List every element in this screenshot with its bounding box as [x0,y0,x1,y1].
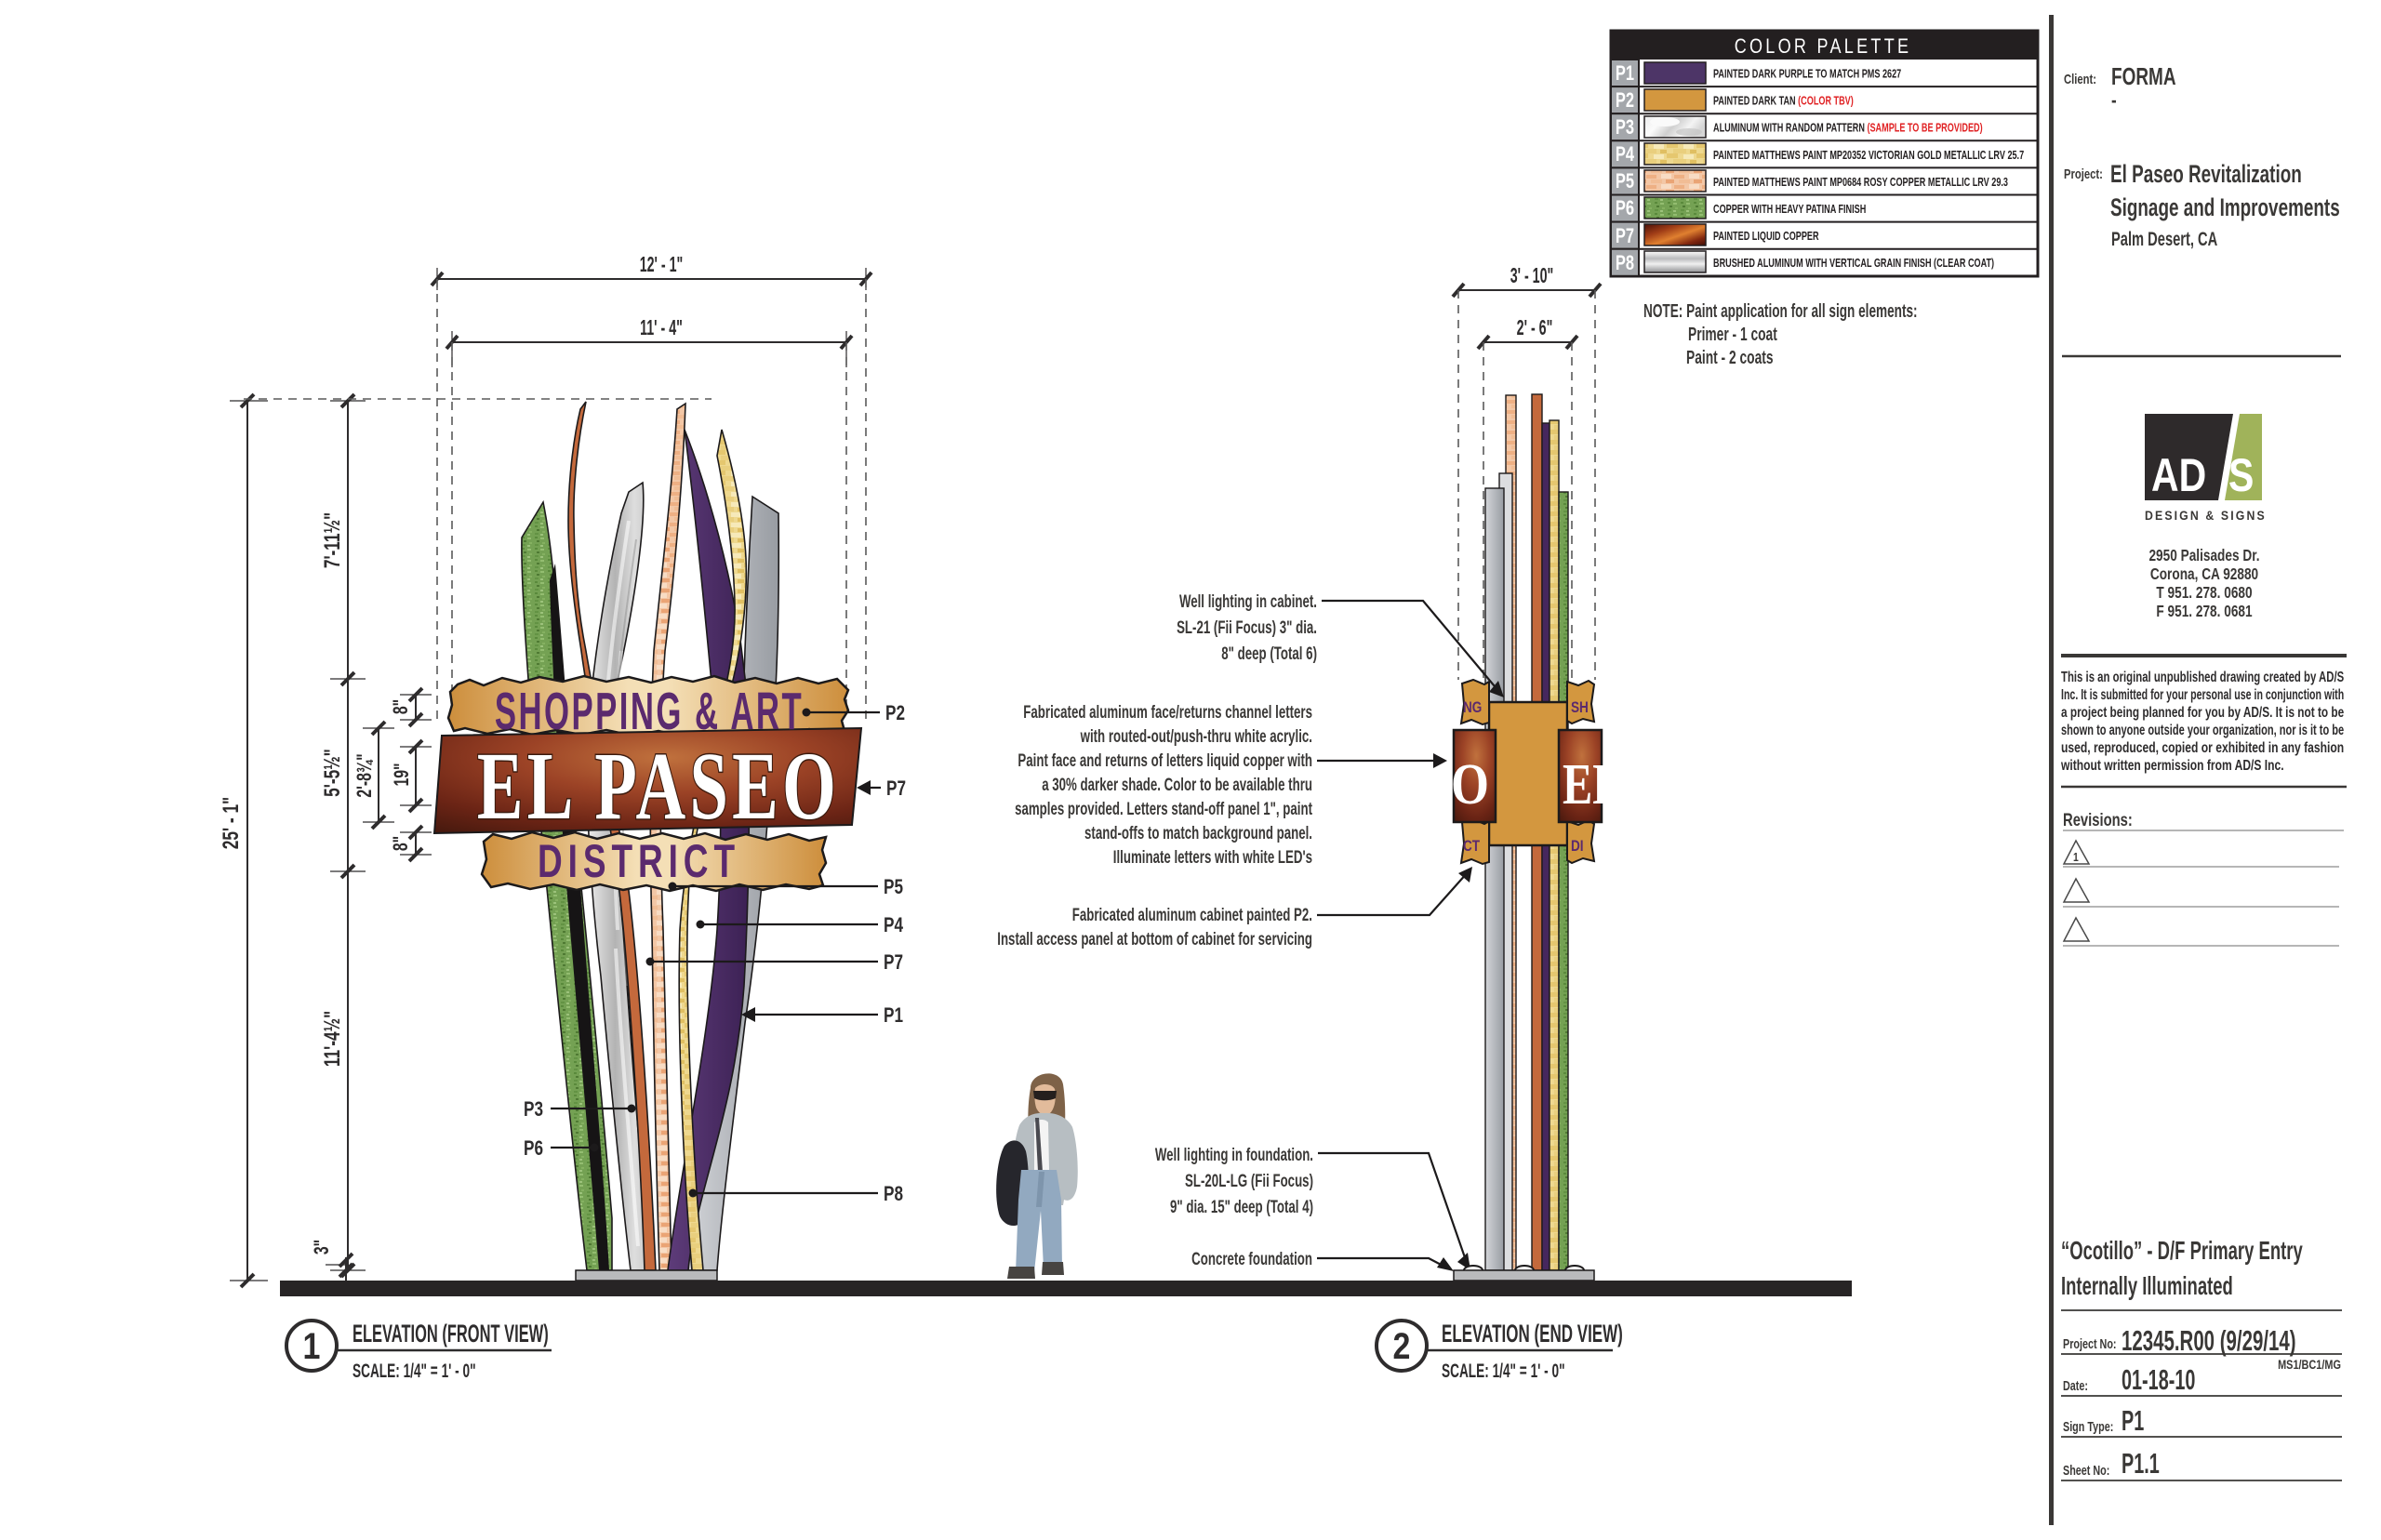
svg-text:Client:: Client: [2064,71,2096,86]
svg-text:PAINTED DARK TAN (COLOR TBV): PAINTED DARK TAN (COLOR TBV) [1713,95,1854,108]
svg-text:Well lighting in foundation.: Well lighting in foundation. [1155,1146,1313,1165]
svg-text:used, reproduced, copied or ex: used, reproduced, copied or exhibited in… [2061,739,2344,756]
svg-text:AD: AD [2151,449,2206,501]
svg-text:Project:: Project: [2064,166,2103,181]
svg-text:PAINTED DARK PURPLE TO MATCH P: PAINTED DARK PURPLE TO MATCH PMS 2627 [1713,68,1901,81]
svg-text:with routed-out/push-thru whit: with routed-out/push-thru white acrylic. [1080,727,1312,747]
svg-text:P3: P3 [1616,116,1634,139]
svg-text:SL-21 (Fii Focus) 3" dia.: SL-21 (Fii Focus) 3" dia. [1177,618,1317,638]
svg-text:P1: P1 [884,1004,903,1028]
svg-text:P3: P3 [524,1098,543,1122]
svg-text:shown to anyone outside your o: shown to anyone outside your organizatio… [2061,722,2344,738]
svg-text:P2: P2 [885,702,905,725]
svg-text:P8: P8 [1616,252,1634,275]
svg-text:NOTE: Paint application for al: NOTE: Paint application for all sign ele… [1643,300,1918,321]
svg-text:8": 8" [391,836,413,851]
svg-text:11' - 4": 11' - 4" [640,317,683,340]
svg-text:FORMA: FORMA [2111,62,2176,90]
svg-text:2'-8¾": 2'-8¾" [354,753,377,797]
svg-text:8" deep (Total 6): 8" deep (Total 6) [1221,644,1317,664]
svg-text:5'-5½": 5'-5½" [320,749,344,797]
svg-text:PAINTED LIQUID COPPER: PAINTED LIQUID COPPER [1713,231,1819,244]
svg-text:DI: DI [1571,838,1584,856]
svg-text:PAINTED MATTHEWS PAINT MP0684: PAINTED MATTHEWS PAINT MP0684 ROSY COPPE… [1713,176,2008,189]
svg-text:2' - 6": 2' - 6" [1517,317,1553,340]
svg-text:Sheet No:: Sheet No: [2063,1462,2109,1478]
svg-text:COLOR PALETTE: COLOR PALETTE [1735,35,1912,58]
svg-text:DESIGN & SIGNS: DESIGN & SIGNS [2145,508,2267,523]
svg-text:COPPER WITH HEAVY PATINA FINIS: COPPER WITH HEAVY PATINA FINISH [1713,204,1866,217]
svg-text:P1.1: P1.1 [2122,1446,2160,1480]
svg-text:Date:: Date: [2063,1377,2088,1393]
svg-text:2: 2 [1393,1324,1411,1366]
svg-text:F 951. 278. 0681: F 951. 278. 0681 [2156,604,2252,621]
svg-text:CT: CT [1463,838,1481,856]
svg-text:Well lighting in cabinet.: Well lighting in cabinet. [1179,592,1317,612]
svg-text:Paint face and returns of lett: Paint face and returns of letters liquid… [1018,751,1312,771]
svg-text:P1: P1 [1616,62,1634,86]
svg-text:without written permission fro: without written permission from AD/S Inc… [2060,757,2283,774]
svg-text:SCALE: 1/4" = 1' - 0": SCALE: 1/4" = 1' - 0" [352,1360,476,1382]
svg-text:NG: NG [1463,699,1482,717]
svg-text:Internally Illuminated: Internally Illuminated [2061,1272,2233,1301]
svg-text:P5: P5 [1616,170,1634,193]
svg-text:P6: P6 [1616,197,1634,220]
svg-text:P2: P2 [1616,89,1634,113]
svg-text:1: 1 [2073,851,2079,864]
svg-text:a project being planned for yo: a project being planned for you by AD/S.… [2061,704,2344,721]
svg-text:T 951. 278. 0680: T 951. 278. 0680 [2156,585,2252,603]
svg-text:SL-20L-LG (Fii Focus): SL-20L-LG (Fii Focus) [1185,1172,1313,1191]
svg-text:SH: SH [1571,699,1589,717]
svg-text:ALUMINUM WITH RANDOM PATTERN (: ALUMINUM WITH RANDOM PATTERN (SAMPLE TO … [1713,122,1983,135]
svg-text:11'-4½": 11'-4½" [320,1011,344,1067]
svg-text:S: S [2228,449,2254,501]
svg-text:samples provided. Letters stan: samples provided. Letters stand-off pane… [1015,800,1312,819]
svg-text:MS1/BC1/MG: MS1/BC1/MG [2278,1358,2341,1373]
svg-text:Concrete foundation: Concrete foundation [1191,1250,1312,1269]
svg-text:Inc. It is submitted for your: Inc. It is submitted for your personal u… [2061,686,2344,703]
svg-text:19": 19" [392,763,414,786]
svg-text:ELEVATION (END VIEW): ELEVATION (END VIEW) [1442,1320,1623,1347]
svg-text:Install access panel at bottom: Install access panel at bottom of cabine… [997,930,1312,949]
svg-text:Primer - 1 coat: Primer - 1 coat [1688,323,1777,344]
svg-text:Sign Type:: Sign Type: [2063,1418,2113,1434]
svg-text:2950 Palisades Dr.: 2950 Palisades Dr. [2148,548,2259,565]
svg-text:DISTRICT: DISTRICT [538,836,740,888]
svg-text:El Paseo Revitalization: El Paseo Revitalization [2110,160,2302,188]
svg-text:Palm Desert, CA: Palm Desert, CA [2111,228,2217,249]
svg-text:EL PASEO: EL PASEO [477,732,840,840]
svg-text:Fabricated aluminum cabinet pa: Fabricated aluminum cabinet painted P2. [1072,906,1312,925]
svg-text:25' - 1": 25' - 1" [219,797,243,849]
svg-text:Fabricated aluminum face/retur: Fabricated aluminum face/returns channel… [1023,703,1312,723]
svg-text:O: O [1451,753,1489,816]
svg-text:-: - [2111,89,2117,113]
svg-text:8": 8" [391,699,413,714]
svg-text:12' - 1": 12' - 1" [640,254,684,277]
svg-text:“Ocotillo” - D/F Primary Entry: “Ocotillo” - D/F Primary Entry [2061,1237,2303,1266]
svg-text:01-18-10: 01-18-10 [2122,1362,2195,1396]
svg-text:a 30% darker shade. Color to b: a 30% darker shade. Color to be availabl… [1042,776,1312,795]
svg-text:SCALE: 1/4" = 1' - 0": SCALE: 1/4" = 1' - 0" [1442,1360,1565,1382]
svg-text:1: 1 [303,1324,321,1366]
svg-text:This is an original unpublishe: This is an original unpublished drawing … [2061,669,2344,685]
svg-text:P6: P6 [524,1137,543,1161]
svg-text:P7: P7 [1616,225,1634,248]
svg-text:P8: P8 [884,1183,903,1206]
svg-text:7'-11½": 7'-11½" [320,512,344,568]
svg-text:Signage and Improvements: Signage and Improvements [2110,193,2340,221]
svg-text:Revisions:: Revisions: [2063,810,2133,830]
svg-text:P5: P5 [884,876,903,899]
svg-text:BRUSHED ALUMINUM WITH VERTICAL: BRUSHED ALUMINUM WITH VERTICAL GRAIN FIN… [1713,258,1994,271]
svg-text:EL: EL [1563,752,1622,816]
svg-text:stand-offs to match background: stand-offs to match background panel. [1084,824,1312,843]
svg-text:12345.R00 (9/29/14): 12345.R00 (9/29/14) [2122,1324,2296,1357]
svg-text:3' - 10": 3' - 10" [1510,265,1554,288]
svg-text:P7: P7 [886,777,906,801]
svg-text:P4: P4 [884,914,903,937]
svg-text:Paint - 2 coats: Paint - 2 coats [1686,346,1774,367]
svg-text:ELEVATION (FRONT VIEW): ELEVATION (FRONT VIEW) [352,1320,549,1347]
svg-text:PAINTED MATTHEWS PAINT MP20352: PAINTED MATTHEWS PAINT MP20352 VICTORIAN… [1713,149,2024,162]
svg-text:Project No:: Project No: [2063,1335,2117,1351]
svg-text:P7: P7 [884,951,903,975]
svg-text:9" dia. 15" deep (Total 4): 9" dia. 15" deep (Total 4) [1170,1198,1313,1217]
svg-text:P4: P4 [1616,143,1634,166]
svg-text:Corona, CA 92880: Corona, CA 92880 [2150,566,2259,584]
svg-text:P1: P1 [2122,1403,2144,1437]
svg-text:3": 3" [312,1240,334,1255]
svg-text:Illuminate letters with white: Illuminate letters with white LED's [1113,848,1312,868]
